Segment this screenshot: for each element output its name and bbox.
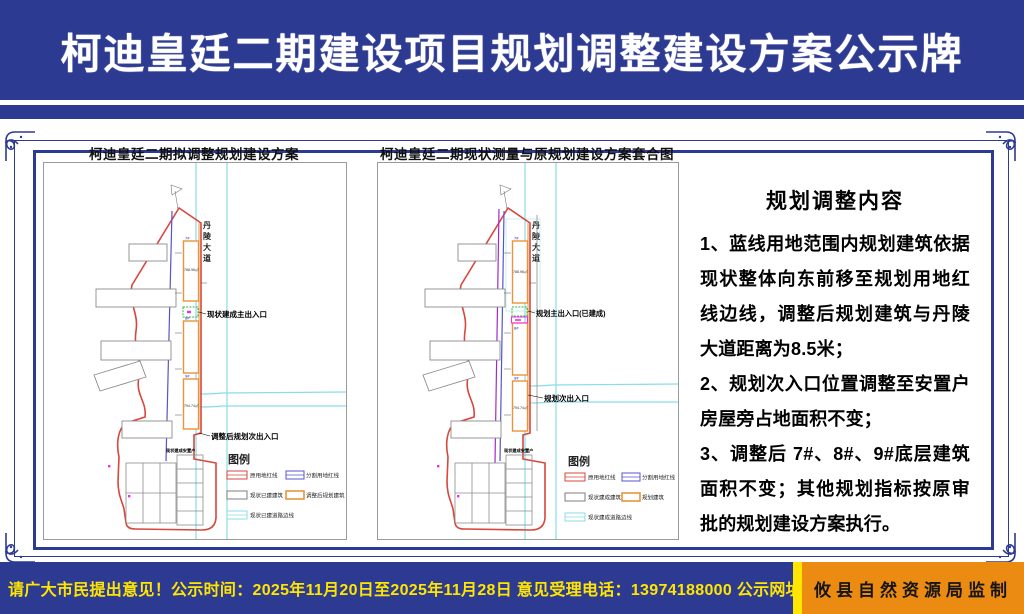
secondary-entrance-label: 调整后规划次出入口 [211, 431, 279, 441]
svg-text:现状已建建筑: 现状已建建筑 [250, 492, 284, 500]
main-area: 柯迪皇廷二期拟调整规划建设方案 丹陵大道 [0, 119, 1024, 562]
existing-buildings [423, 244, 505, 438]
survey-point [128, 495, 130, 497]
legend-title: 图例 [568, 454, 590, 468]
svg-text:现状建成建筑: 现状建成建筑 [588, 494, 622, 502]
footer-yellow-stripe [793, 562, 802, 614]
parcel-cluster [455, 455, 532, 525]
svg-text:分割用地红线: 分割用地红线 [642, 474, 676, 482]
content-item-1: 1、蓝线用地范围内规划建筑依据现状整体向东前移至规划用地红线边线，调整后规划建筑… [700, 227, 970, 367]
adjustment-content: 规划调整内容 1、蓝线用地范围内规划建筑依据现状整体向东前移至规划用地红线边线，… [700, 185, 970, 542]
svg-text:7#: 7# [185, 236, 190, 241]
svg-text:调整后规划建筑: 调整后规划建筑 [306, 492, 345, 500]
survey-point [108, 465, 110, 467]
north-tip-marker [171, 185, 182, 209]
left-site-plan: 丹陵大道 [44, 163, 346, 539]
road-name-label: 丹陵大道 [531, 221, 541, 265]
survey-point [457, 495, 459, 497]
area-label: 794.74㎡ [513, 405, 528, 410]
svg-text:8#: 8# [185, 316, 190, 321]
svg-text:8#: 8# [514, 326, 519, 331]
main-entrance-label: 规划主出入口(已建成) [535, 309, 606, 318]
svg-text:原用地红线: 原用地红线 [250, 472, 278, 480]
svg-text:规划建筑: 规划建筑 [642, 494, 665, 502]
corner-ornament-icon [3, 129, 35, 161]
secondary-entrance-label: 规划次出入口 [544, 393, 589, 403]
header-subband [0, 105, 1024, 119]
resettlement-label: 现状建成安置户 [166, 447, 195, 454]
survey-point [437, 465, 439, 467]
area-label: 788.96㎡ [184, 267, 199, 272]
content-item-3: 3、调整后 7#、8#、9#底层建筑面积不变；其他规划指标按原审批的规划建设方案… [700, 437, 970, 542]
content-title: 规划调整内容 [700, 185, 970, 215]
svg-text:9#: 9# [185, 374, 190, 379]
svg-text:原用地红线: 原用地红线 [588, 474, 616, 482]
road-name-label: 丹陵大道 [202, 221, 212, 265]
parcel-cluster [126, 455, 203, 525]
page-title: 柯迪皇廷二期建设项目规划调整建设方案公示牌 [61, 20, 964, 80]
svg-text:9#: 9# [514, 376, 519, 381]
svg-text:7#: 7# [514, 236, 519, 241]
right-map-panel: 丹陵大道 [377, 162, 679, 540]
right-map-title: 柯迪皇廷二期现状测量与原规划建设方案套合图 [377, 143, 677, 161]
corner-ornament-icon [986, 533, 1018, 565]
agency-box: 攸县自然资源局监制 [802, 562, 1024, 614]
agency-label: 攸县自然资源局监制 [814, 576, 1012, 601]
corner-ornament-icon [3, 533, 35, 565]
road-lines [196, 163, 346, 539]
existing-buildings [94, 244, 176, 438]
main-entrance-label: 现状建成主出入口 [207, 309, 267, 319]
left-map-panel: 丹陵大道 [43, 162, 347, 540]
content-item-2: 2、规划次入口位置调整至安置户房屋旁占地面积不变； [700, 367, 970, 437]
svg-text:现状建成道路边线: 现状建成道路边线 [588, 514, 633, 522]
notice-board: 柯迪皇廷二期建设项目规划调整建设方案公示牌 [0, 0, 1024, 614]
legend-title: 图例 [228, 452, 250, 466]
area-label: 788.96㎡ [513, 269, 528, 274]
area-label: 794.74㎡ [184, 403, 199, 408]
right-site-plan: 丹陵大道 [378, 163, 678, 539]
header-banner: 柯迪皇廷二期建设项目规划调整建设方案公示牌 [0, 0, 1024, 100]
footer-bar: 请广大市民提出意见！公示时间：2025年11月20日至2025年11月28日 意… [0, 562, 1024, 614]
map-legend: 图例 原用地红线 分割用地红线 现状建成建筑 规划建筑 现状建成道路边线 [565, 454, 676, 522]
map-legend: 图例 原用地红线 分割用地红线 现状已建建筑 调整后规划建筑 现状已建道路边线 [227, 452, 345, 520]
svg-text:现状已建道路边线: 现状已建道路边线 [250, 512, 295, 520]
north-tip-marker [500, 185, 511, 209]
left-map-title: 柯迪皇廷二期拟调整规划建设方案 [43, 143, 345, 161]
resettlement-label: 现状建成安置户 [504, 447, 533, 454]
svg-text:分割用地红线: 分割用地红线 [306, 472, 340, 480]
corner-ornament-icon [986, 129, 1018, 161]
